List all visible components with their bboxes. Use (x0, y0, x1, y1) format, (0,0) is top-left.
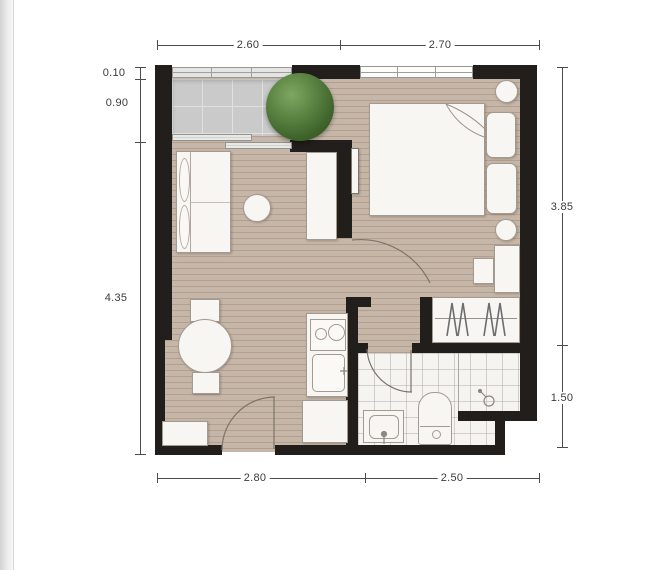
dim-tick (157, 40, 158, 50)
entrance-door-arc (222, 397, 275, 450)
bed-fold-lines (446, 104, 486, 137)
dim-tick (135, 79, 146, 80)
dim-line-right (562, 67, 563, 448)
dim-tick (557, 447, 568, 448)
dim-label-bottom-1: 2.80 (241, 472, 270, 484)
dim-label-top-1: 2.60 (234, 39, 263, 51)
dim-label-left-2: 0.90 (103, 97, 132, 109)
dim-tick (539, 473, 540, 483)
dim-tick (340, 40, 341, 50)
dim-tick (557, 345, 568, 346)
fixture-icons (340, 367, 494, 444)
dim-tick (135, 67, 146, 68)
dim-line-left (140, 67, 141, 455)
hanger-icons (447, 303, 505, 336)
dim-tick (157, 473, 158, 483)
dim-label-left-1: 0.10 (100, 67, 129, 79)
dim-label-right-2: 1.50 (548, 392, 577, 404)
dim-tick (135, 142, 146, 143)
floor-plan: 2.60 2.70 2.80 2.50 0.10 0.90 4.35 3.85 … (0, 0, 652, 570)
dim-label-bottom-2: 2.50 (438, 472, 467, 484)
dim-tick (135, 454, 146, 455)
dim-label-top-2: 2.70 (426, 39, 455, 51)
dim-tick (539, 40, 540, 50)
bathroom-door-arc (367, 349, 412, 392)
dim-label-right-1: 3.85 (548, 201, 577, 213)
dim-line-top (157, 45, 540, 46)
shower-head-icon (484, 396, 494, 406)
dim-tick (365, 473, 366, 483)
sink-faucet-icon (382, 432, 387, 437)
dim-line-bottom (157, 478, 540, 479)
kitchen-faucet-icon (340, 367, 348, 375)
door-swings (222, 240, 430, 450)
dim-tick (557, 67, 568, 68)
linework-overlay (0, 0, 652, 570)
dim-label-left-3: 4.35 (102, 292, 131, 304)
bedroom-door-arc (352, 240, 430, 283)
